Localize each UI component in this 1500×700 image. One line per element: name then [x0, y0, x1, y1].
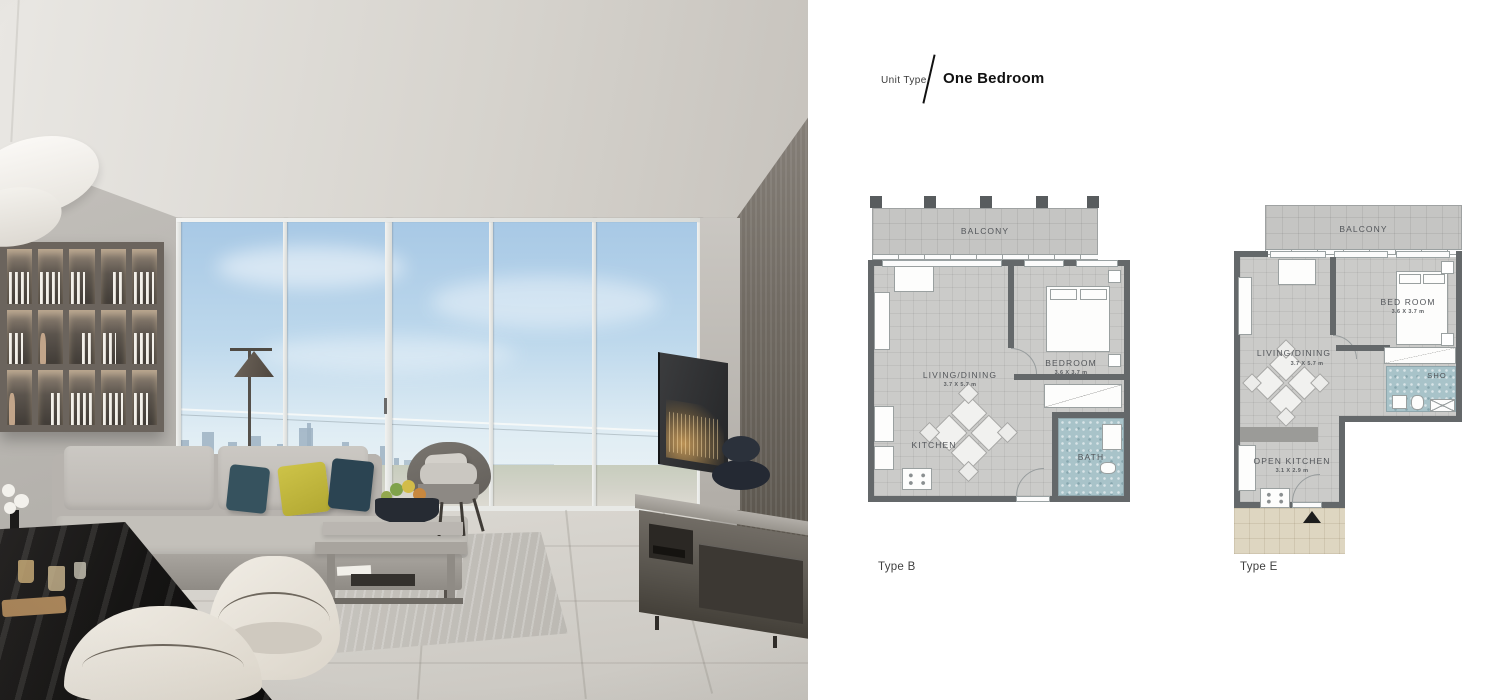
- stove: [1260, 488, 1290, 508]
- floorplan-type-e: BALCONY SHO: [1234, 205, 1462, 555]
- tv-cabinet: [633, 468, 808, 638]
- kitchen-counter: [1240, 427, 1318, 442]
- nightstand-icon: [1441, 261, 1454, 274]
- room-label-kitchen: KITCHEN: [894, 441, 974, 450]
- floorplan-type-b: BALCONY BATH: [868, 196, 1130, 506]
- kitchen-sink: [874, 406, 894, 442]
- room-label-bedroom: BED ROOM: [1360, 298, 1456, 307]
- wardrobe: [1384, 347, 1456, 364]
- toilet: [1100, 462, 1116, 474]
- floor-lamp-arm: [230, 348, 272, 351]
- door-handle: [384, 398, 387, 414]
- drinking-glass: [74, 562, 86, 579]
- room-dims-bedroom: 3.6 X 3.7 m: [1018, 371, 1124, 377]
- sofa-symbol: [874, 292, 890, 350]
- bath-sink: [1102, 424, 1122, 450]
- room-label-kitchen: OPEN KITCHEN: [1234, 457, 1350, 466]
- drinking-glass: [18, 560, 34, 583]
- plan-caption-type-b: Type B: [878, 561, 916, 573]
- nightstand-icon: [1108, 270, 1121, 283]
- entry-area: [1234, 508, 1345, 554]
- room-dims-living: 3.7 X 5.7 m: [890, 383, 1030, 389]
- room-dims-living: 3.7 X 5.7 m: [1247, 362, 1367, 368]
- shower-sink: [1392, 395, 1407, 409]
- room-dims-kitchen: 3.1 X 2.9 m: [1234, 469, 1350, 475]
- room-label-balcony: BALCONY: [872, 227, 1098, 236]
- living-room-photo: [0, 0, 808, 700]
- room-label-living: LIVING/DINING: [890, 371, 1030, 380]
- page-title: One Bedroom: [943, 70, 1044, 87]
- dresser-symbol: [894, 266, 934, 292]
- room-dims-bedroom: 3.6 X 3.7 m: [1360, 310, 1456, 316]
- sofa-symbol: [1238, 277, 1252, 335]
- dresser-symbol: [1278, 259, 1316, 285]
- plan-caption-type-e: Type E: [1240, 561, 1278, 573]
- window-mullion: [592, 218, 596, 510]
- room-label-bedroom: BEDROOM: [1018, 359, 1124, 368]
- room-label-balcony: BALCONY: [1265, 225, 1462, 234]
- drinking-glass: [48, 566, 65, 591]
- window-frame-top: [176, 218, 702, 222]
- unit-type-label: Unit Type: [881, 75, 927, 86]
- kitchen-sink: [1238, 445, 1256, 491]
- teal-pillow: [226, 464, 271, 514]
- kitchen-counter: [874, 446, 894, 470]
- books: [351, 574, 415, 586]
- wardrobe: [1044, 384, 1122, 408]
- nightstand-icon: [1441, 333, 1454, 346]
- brochure-page: Unit Type One Bedroom BALCONY: [0, 0, 1500, 700]
- fruit-bowl: [375, 498, 439, 524]
- shaft-icon: [1430, 399, 1455, 412]
- decor-vase: [712, 436, 770, 492]
- room-label-bath: BATH: [1058, 453, 1124, 462]
- toilet: [1411, 395, 1424, 410]
- wall-bookshelf: [0, 242, 164, 432]
- cabinet-drawer: [699, 544, 803, 624]
- stove: [902, 468, 932, 490]
- room-label-shower: SHO: [1420, 372, 1454, 380]
- room-label-living: LIVING/DINING: [1234, 349, 1354, 358]
- entrance-arrow-icon: [1303, 511, 1321, 523]
